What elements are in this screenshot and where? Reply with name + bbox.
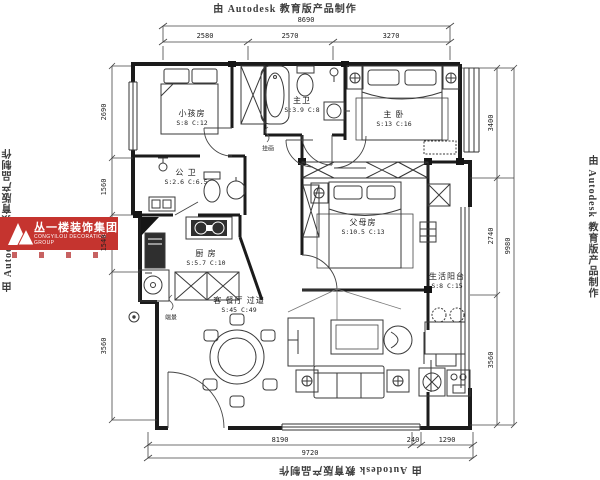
room-label-master-bedroom: 主 卧 S:13 C:16 — [376, 110, 411, 128]
room-label-living-dining: 客 餐厅 过道 S:45 C:49 — [213, 296, 264, 314]
coffee-table — [331, 320, 383, 354]
dim-right-total: 9980 — [504, 238, 512, 255]
dim-bottom-seg1: 8190 — [272, 436, 289, 444]
dim-bottom-seg3: 1290 — [439, 436, 456, 444]
room-stats: S:3.9 C:8 — [284, 106, 319, 114]
room-name: 生活阳台 — [429, 272, 465, 282]
stove — [186, 217, 232, 239]
public-sink — [227, 177, 245, 199]
room-label-master-bath: 主卫 S:3.9 C:8 — [284, 96, 319, 114]
balcony-cabinet — [428, 184, 450, 206]
master-toilet — [297, 66, 314, 96]
sofa — [314, 366, 384, 398]
room-stats: S:5.7 C:10 — [186, 259, 225, 267]
watermark-right: 由 Autodesk 教育版产品制作 — [584, 155, 599, 299]
mountain-logo-icon — [8, 221, 34, 245]
dim-chain-top — [159, 23, 454, 60]
kitchen-sink — [139, 270, 169, 301]
dim-bottom-total: 9720 — [302, 449, 319, 457]
room-stats: S:10.5 C:13 — [341, 228, 384, 236]
room-stats: S:45 C:49 — [213, 306, 264, 314]
laundry-counter — [447, 370, 470, 396]
lounge-chair — [384, 326, 412, 354]
room-name: 客 餐厅 过道 — [213, 296, 264, 306]
ann-label-hanging-art: 挂画 — [262, 144, 274, 153]
room-name: 主 卧 — [376, 110, 411, 120]
floor-drain-icon — [129, 312, 139, 322]
room-name: 小孩房 — [176, 109, 207, 119]
room-label-balcony: 生活阳台 S:8 C:15 — [429, 272, 465, 290]
dining-table — [203, 314, 277, 407]
master-bed — [356, 66, 448, 140]
dim-left-seg1: 2690 — [100, 104, 108, 121]
room-label-parents-room: 父母房 S:10.5 C:13 — [341, 218, 384, 236]
room-stats: S:13 C:16 — [376, 120, 411, 128]
washing-machine — [419, 368, 445, 396]
dim-top-total: 8690 — [298, 16, 315, 24]
hatched-wall-row — [302, 162, 428, 178]
shower-head-icon — [330, 68, 338, 82]
watermark-bottom: 由 Autodesk 教育版产品制作 — [278, 464, 422, 479]
logo-slogan-glyphs — [12, 252, 98, 258]
dim-top-seg1: 2580 — [197, 32, 214, 40]
room-label-kids-room: 小孩房 S:8 C:12 — [176, 109, 207, 127]
ceiling-lines — [288, 289, 401, 320]
master-rug — [424, 141, 456, 154]
room-label-public-bath: 公 卫 S:2.6 C:6.5 — [164, 168, 207, 186]
room-stats: S:8 C:12 — [176, 119, 207, 127]
room-stats: S:2.6 C:6.5 — [164, 178, 207, 186]
room-name: 主卫 — [284, 96, 319, 106]
room-name: 父母房 — [341, 218, 384, 228]
ann-label-feature-view: 端景 — [165, 313, 177, 322]
dim-top-seg3: 3270 — [383, 32, 400, 40]
desk — [425, 308, 465, 366]
dim-bottom-seg2: 240 — [407, 436, 420, 444]
room-name: 厨 房 — [186, 249, 225, 259]
tv-cabinet — [288, 318, 314, 366]
watermark-top: 由 Autodesk 教育版产品制作 — [213, 0, 357, 15]
public-bath-counter — [149, 197, 175, 211]
dim-left-seg3: 1540 — [100, 235, 108, 252]
dim-right-seg3: 3560 — [487, 352, 495, 369]
dim-top-seg2: 2570 — [282, 32, 299, 40]
room-label-kitchen: 厨 房 S:5.7 C:10 — [186, 249, 225, 267]
cad-floorplan-page: { "watermark": { "text": "由 Autodesk 教育版… — [0, 0, 600, 480]
room-stats: S:8 C:15 — [429, 282, 465, 290]
fridge — [145, 233, 165, 268]
logo-company-name: 丛一楼装饰集团 — [34, 222, 118, 234]
dim-left-seg4: 3560 — [100, 338, 108, 355]
dim-right-seg1: 3400 — [487, 115, 495, 132]
room-name: 公 卫 — [164, 168, 207, 178]
dim-right-seg2: 2740 — [487, 228, 495, 245]
dim-left-seg2: 1560 — [100, 179, 108, 196]
